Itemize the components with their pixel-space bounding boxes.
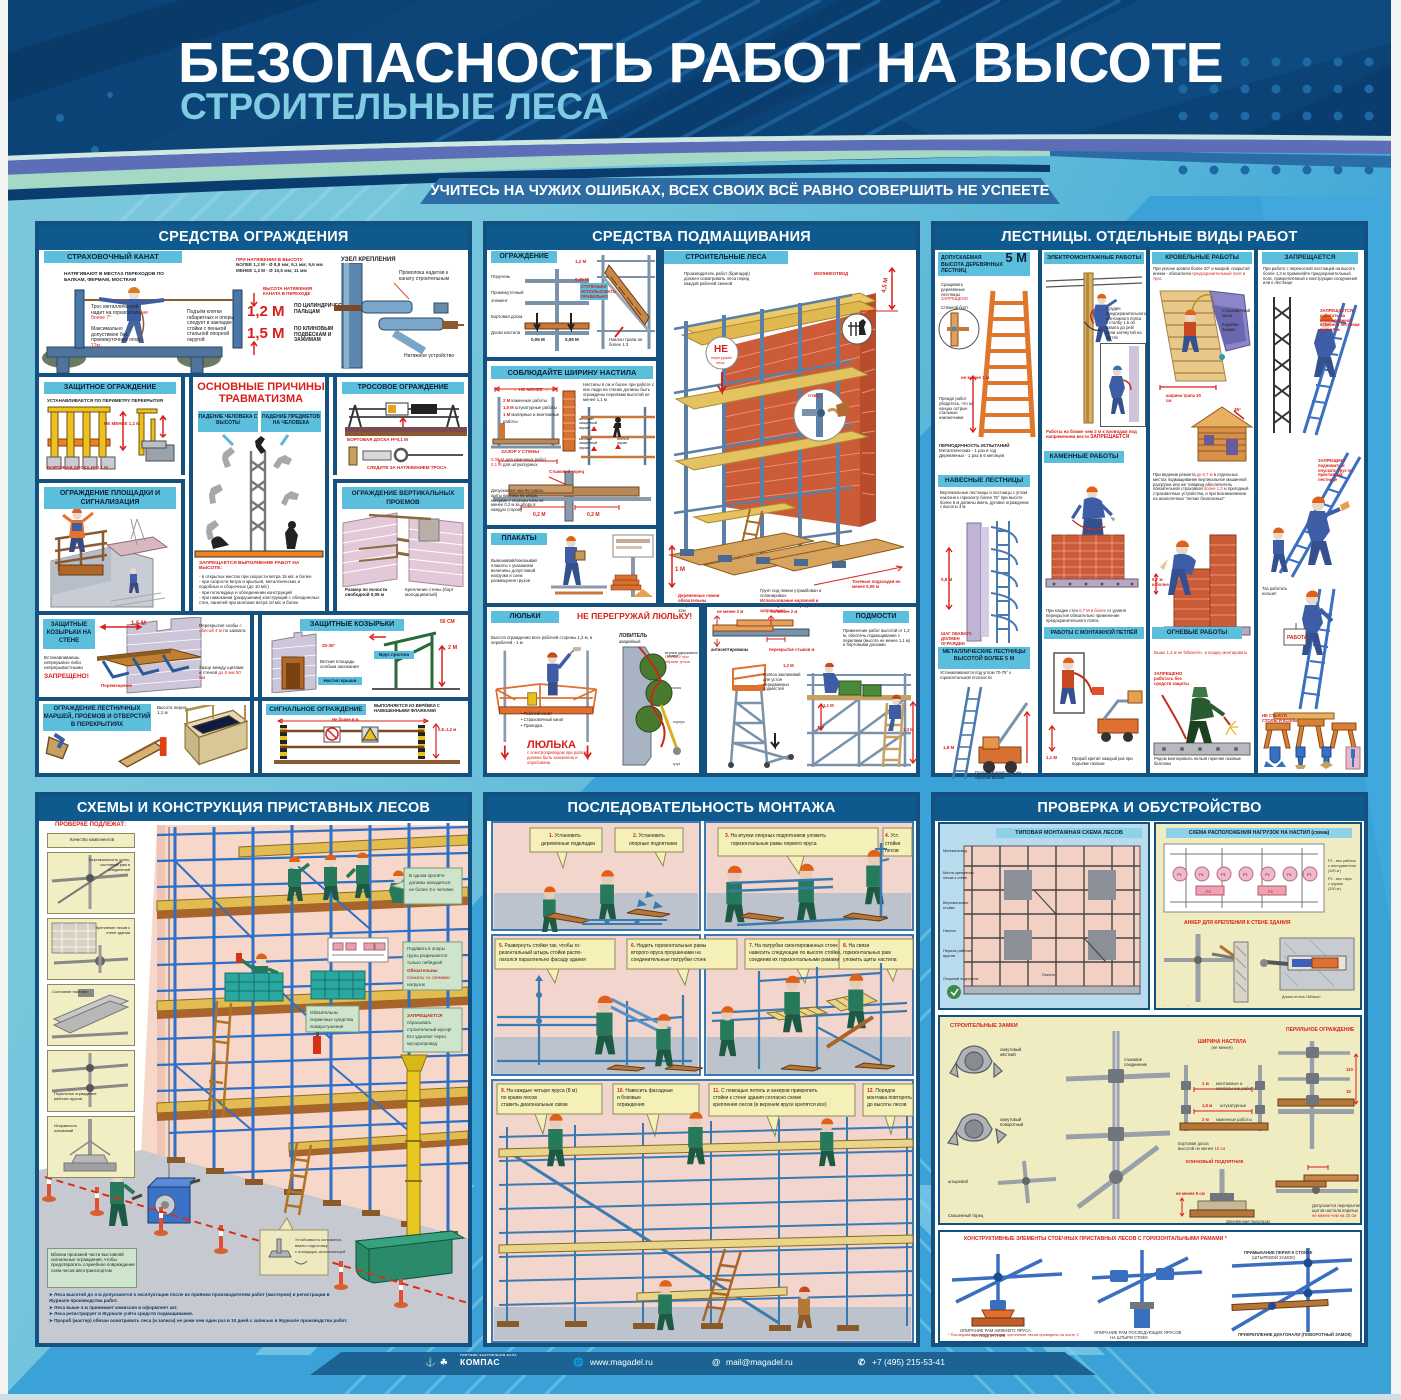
svg-text:пожаротушения: пожаротушения (310, 1024, 344, 1029)
svg-text:Молниеотвод: Молниеотвод (943, 849, 968, 853)
svg-text:Деревянная подкладка: Деревянная подкладка (1226, 1219, 1270, 1223)
svg-text:ролик: ролик (671, 686, 681, 690)
svg-text:лагался параллельно фасаду зда: лагался параллельно фасаду здания (499, 957, 586, 963)
svg-text:Лежень: Лежень (1042, 973, 1055, 977)
svg-text:ОТВЕС: ОТВЕС (808, 393, 822, 398)
svg-text:В одном пролёте: В одном пролёте (409, 873, 445, 878)
svg-text:9. На каждые четыре яруса (8 м: 9. На каждые четыре яруса (8 м) (501, 1088, 577, 1094)
svg-text:1,5 м: 1,5 м (1202, 1103, 1212, 1108)
svg-text:клепальные работы: клепальные работы (1216, 1086, 1256, 1091)
svg-text:Длина не less 160/мост: Длина не less 160/мост (1282, 995, 1321, 999)
svg-text:(ШТЫРЕВОЙ ЗАМОК): (ШТЫРЕВОЙ ЗАМОК) (1252, 1255, 1296, 1260)
svg-text:по краям лесов: по краям лесов (501, 1095, 537, 1101)
svg-text:стойки: стойки (943, 906, 955, 910)
svg-text:штыревой: штыревой (948, 1179, 968, 1184)
svg-text:2 м: 2 м (1202, 1117, 1209, 1122)
svg-text:плакаты со схемами: плакаты со схемами (407, 975, 450, 980)
svg-text:соединительные патрубки стоек: соединительные патрубки стоек (631, 957, 707, 963)
svg-text:НЕ: НЕ (714, 344, 728, 355)
svg-text:перегружай: перегружай (711, 356, 732, 360)
svg-text:15: 15 (1346, 1089, 1351, 1094)
svg-text:и боковые: и боковые (617, 1095, 641, 1101)
svg-text:Устойчивость основания,: Устойчивость основания, (295, 1237, 342, 1242)
svg-text:сбрасывать: сбрасывать (407, 1020, 432, 1025)
svg-text:Р2: Р2 (1268, 889, 1274, 894)
svg-text:уложить щиты настила: уложить щиты настила (843, 957, 897, 963)
svg-text:110: 110 (1346, 1067, 1354, 1072)
svg-text:не менее 5 см: не менее 5 см (1176, 1191, 1205, 1196)
svg-text:Опорный подпятник: Опорный подпятник (943, 977, 979, 981)
svg-text:1 - поворотный к захвату: 1 - поворотный к захвату (1164, 1005, 1206, 1006)
svg-text:ставить диагональные связи: ставить диагональные связи (501, 1102, 568, 1108)
svg-text:Его удаляют через: Его удаляют через (407, 1034, 446, 1039)
svg-text:соединение: соединение (1124, 1062, 1148, 1067)
svg-text:груз: груз (673, 762, 680, 766)
svg-text:Обязательны: Обязательны (310, 1010, 338, 1015)
svg-text:7. На патрубки смонтированных: 7. На патрубки смонтированных стоек (749, 943, 838, 949)
svg-text:Места крепления: Места крепления (943, 871, 974, 875)
svg-text:не менее чем на 20 см: не менее чем на 20 см (1312, 1213, 1356, 1218)
svg-text:монтажа повторять: монтажа повторять (867, 1095, 912, 1101)
svg-text:Вертикальные: Вертикальные (943, 901, 969, 905)
svg-text:Настил: Настил (943, 929, 956, 933)
svg-text:1 М: 1 М (675, 567, 685, 573)
svg-text:8. На связи: 8. На связи (843, 943, 869, 949)
svg-text:РАБОТА: РАБОТА (1287, 635, 1308, 641)
svg-text:0,05 М: 0,05 М (531, 337, 545, 342)
svg-text:деревянные подкладки: деревянные подкладки (541, 841, 595, 847)
svg-text:(200 кг): (200 кг) (1328, 887, 1342, 891)
svg-text:первичные средства: первичные средства (310, 1017, 354, 1022)
svg-text:Обязательны: Обязательны (407, 967, 438, 973)
svg-text:не более 3-х человек: не более 3-х человек (409, 887, 453, 892)
svg-text:1. Установить: 1. Установить (549, 833, 581, 839)
svg-text:ограждения: ограждения (617, 1102, 645, 1108)
svg-text:11. С помощью петель и анкеров: 11. С помощью петель и анкеров прикрепит… (713, 1088, 818, 1094)
svg-text:Перила рабочих: Перила рабочих (943, 949, 972, 953)
svg-text:ярусов: ярусов (943, 954, 955, 958)
svg-text:штукатурные: штукатурные (1220, 1103, 1247, 1108)
svg-text:с площадок, исключающей: с площадок, исключающей (295, 1249, 345, 1254)
svg-text:с грузом: с грузом (1328, 882, 1343, 886)
svg-text:ризонтальный штырь стойки расп: ризонтальный штырь стойки распо- (499, 949, 582, 956)
svg-text:жёсткий: жёсткий (1000, 1052, 1016, 1057)
svg-text:0,2 М: 0,2 М (587, 512, 600, 518)
svg-text:Р2 - вес тары: Р2 - вес тары (1328, 877, 1352, 881)
svg-text:10. Навесить фасадные: 10. Навесить фасадные (617, 1088, 673, 1094)
svg-text:1 м: 1 м (1202, 1081, 1209, 1086)
svg-text:6. Надеть горизонтальные рамы: 6. Надеть горизонтальные рамы (631, 943, 707, 949)
svg-text:3. На втулки опорных подпятник: 3. На втулки опорных подпятников уложить (725, 833, 826, 839)
svg-text:лесов: лесов (885, 848, 899, 854)
svg-text:мусоропровод: мусоропровод (407, 1041, 437, 1046)
svg-text:грузы разрешается: грузы разрешается (407, 953, 448, 958)
svg-text:горизонтальных рам: горизонтальных рам (843, 950, 891, 956)
svg-text:Р1: Р1 (1243, 872, 1249, 877)
svg-text:Р1: Р1 (1287, 872, 1293, 877)
svg-text:корпус: корпус (673, 720, 685, 724)
svg-text:соединив их горизонтальными ра: соединив их горизонтальными рамами (749, 957, 840, 963)
svg-text:нагрузок: нагрузок (407, 982, 425, 987)
svg-text:только лебёдкой: только лебёдкой (407, 959, 442, 965)
svg-text:опорные подпятники: опорные подпятники (629, 841, 677, 847)
svg-text:12. Порядок: 12. Порядок (867, 1088, 896, 1094)
svg-text:Р1: Р1 (1199, 872, 1205, 877)
svg-text:до высоты лесов: до высоты лесов (867, 1102, 907, 1108)
svg-text:Р1: Р1 (1221, 872, 1227, 877)
svg-text:Р1: Р1 (1177, 872, 1183, 877)
svg-text:крепления лесов (в верхнем яру: крепления лесов (в верхнем ярусе крепятс… (713, 1102, 827, 1108)
svg-text:Р2: Р2 (1206, 889, 1212, 894)
svg-text:(100 кг): (100 кг) (1328, 869, 1342, 873)
svg-text:стойки к стене здания согласно: стойки к стене здания согласно схеме (713, 1094, 802, 1101)
svg-text:каменные работы: каменные работы (1216, 1117, 1252, 1122)
svg-text:поворотный: поворотный (1000, 1122, 1024, 1127)
svg-text:строительный мусор!: строительный мусор! (407, 1026, 452, 1032)
svg-text:5. Развернуть стойки так, чтоб: 5. Развернуть стойки так, чтобы го- (499, 942, 581, 949)
svg-text:леса: леса (716, 361, 725, 365)
svg-text:Р1: Р1 (1307, 872, 1313, 877)
svg-text:Р1: Р1 (1265, 872, 1271, 877)
svg-text:второго яруса проушинами на: второго яруса проушинами на (631, 950, 701, 956)
svg-text:стойки: стойки (885, 840, 900, 847)
svg-text:0,05 М: 0,05 М (565, 337, 579, 342)
svg-text:ПРИКРЕПЛЕНИЕ ДИАГОНАЛИ (ПОВОРО: ПРИКРЕПЛЕНИЕ ДИАГОНАЛИ (ПОВОРОТНЫЙ ЗАМОК… (1238, 1332, 1352, 1337)
svg-text:4. Уст.: 4. Уст. (885, 833, 899, 839)
svg-text:навесить следующие по высоте с: навесить следующие по высоте стойки, (749, 949, 841, 956)
svg-text:ЗАПРЕЩАЕТСЯ: ЗАПРЕЩАЕТСЯ (407, 1013, 442, 1018)
svg-text:должны находиться: должны находиться (409, 880, 451, 885)
svg-text:высотой не менее 15 см: высотой не менее 15 см (1178, 1146, 1225, 1151)
svg-text:2. Установить: 2. Установить (633, 833, 665, 839)
svg-text:лесов к стене: лесов к стене (943, 876, 967, 880)
svg-text:Р1 - вес рабочих: Р1 - вес рабочих (1328, 859, 1356, 863)
svg-text:4,5 М: 4,5 М (881, 277, 890, 293)
svg-text:с инструментом: с инструментом (1328, 864, 1356, 868)
svg-text:Подавать в опоры: Подавать в опоры (407, 946, 445, 951)
svg-text:важно подготовку: важно подготовку (295, 1243, 328, 1248)
svg-text:горизонтальные рамы первого яр: горизонтальные рамы первого яруса (731, 841, 817, 847)
